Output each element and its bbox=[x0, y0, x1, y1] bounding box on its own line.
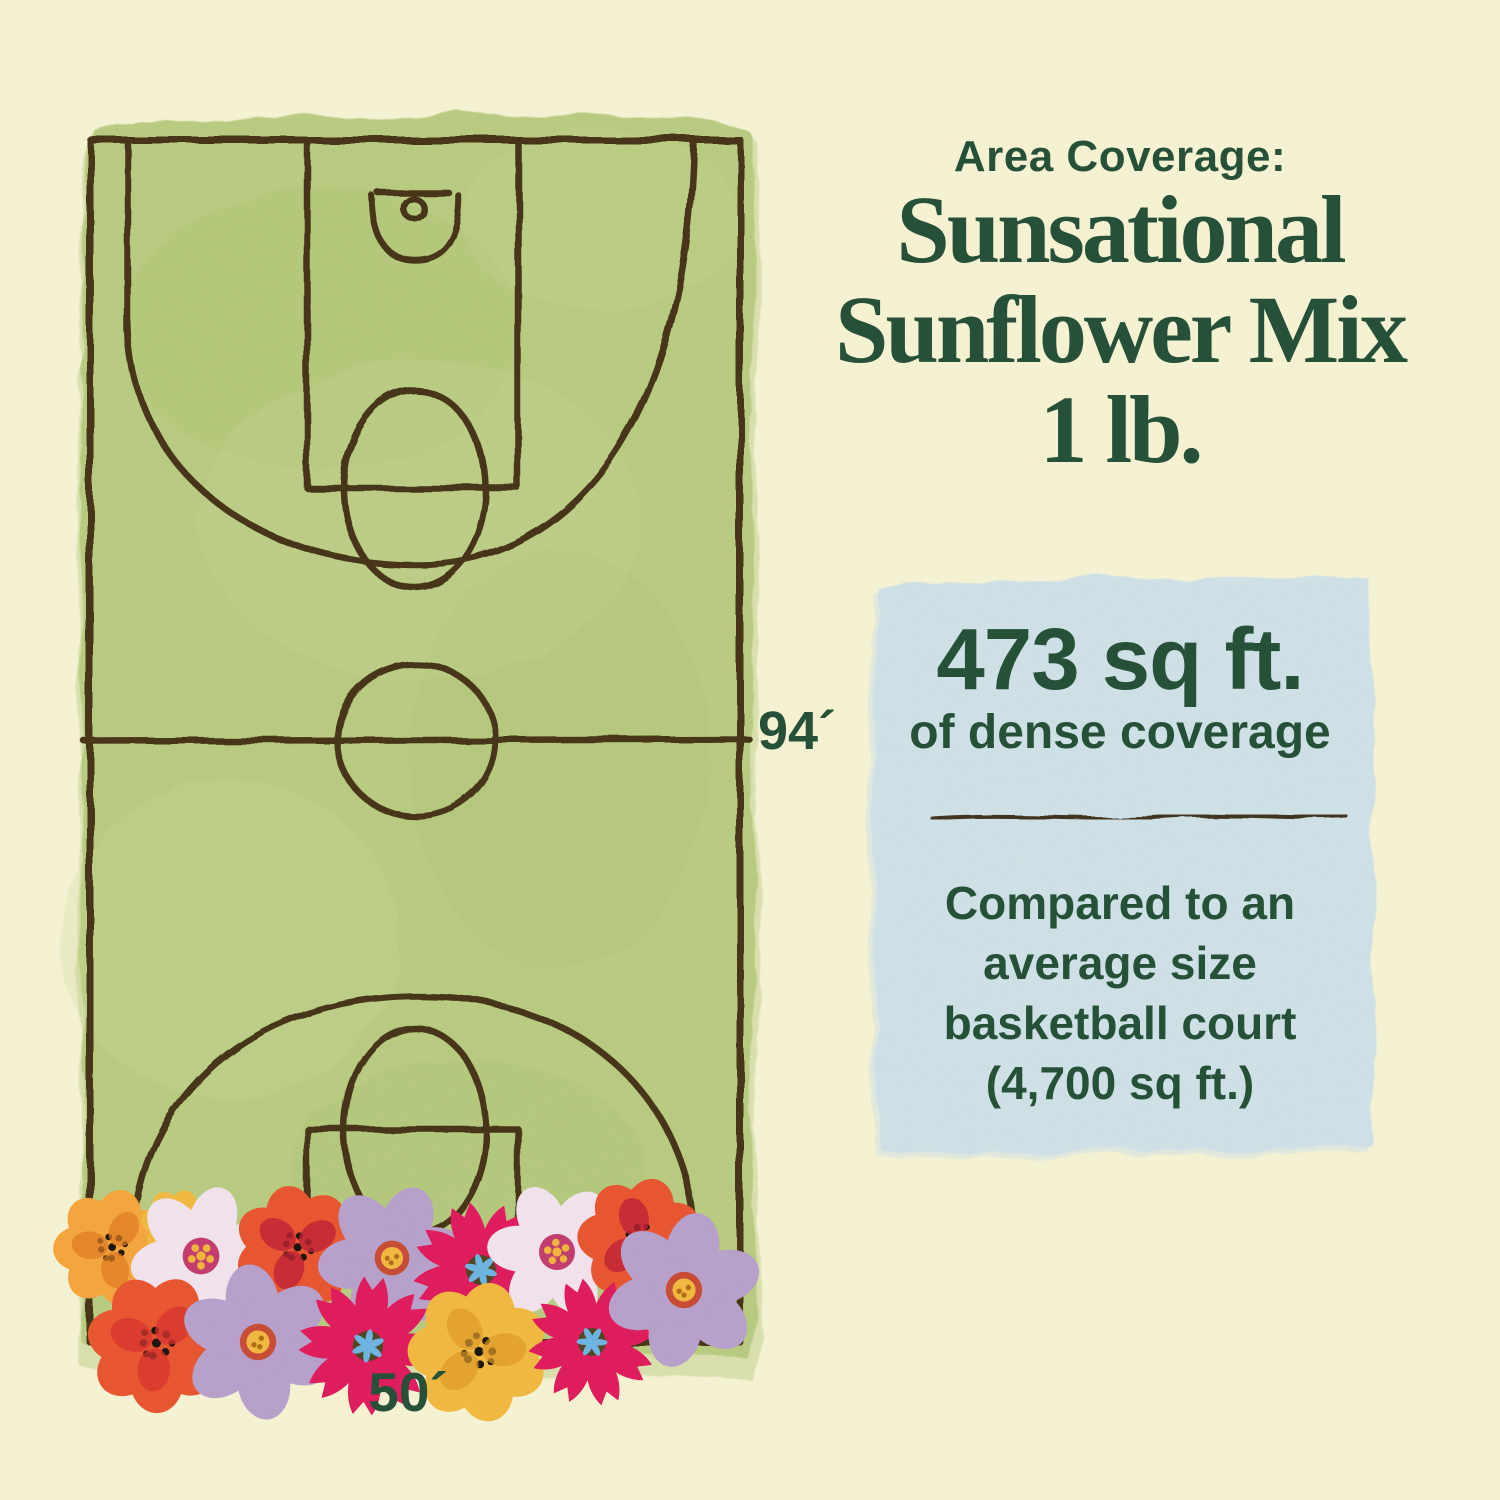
title-line: Sunflower Mix bbox=[770, 280, 1470, 380]
title-line: Sunsational bbox=[770, 180, 1470, 280]
comparison-line: basketball court bbox=[860, 993, 1380, 1053]
court-width-label: 50´ bbox=[333, 1360, 483, 1424]
stat-caption: of dense coverage bbox=[860, 709, 1380, 757]
infographic: Area Coverage: Sunsational Sunflower Mix… bbox=[0, 0, 1500, 1500]
product-title: Sunsational Sunflower Mix 1 lb. bbox=[770, 180, 1470, 480]
comparison-line: (4,700 sq ft.) bbox=[860, 1053, 1380, 1113]
comparison-line: average size bbox=[860, 933, 1380, 993]
title-line: 1 lb. bbox=[770, 380, 1470, 480]
comparison-line: Compared to an bbox=[860, 873, 1380, 933]
court-length-label: 94´ bbox=[742, 700, 852, 762]
eyebrow-label: Area Coverage: bbox=[810, 132, 1430, 183]
stat-value: 473 sq ft. bbox=[860, 616, 1380, 703]
comparison-text: Compared to an average size basketball c… bbox=[860, 873, 1380, 1113]
